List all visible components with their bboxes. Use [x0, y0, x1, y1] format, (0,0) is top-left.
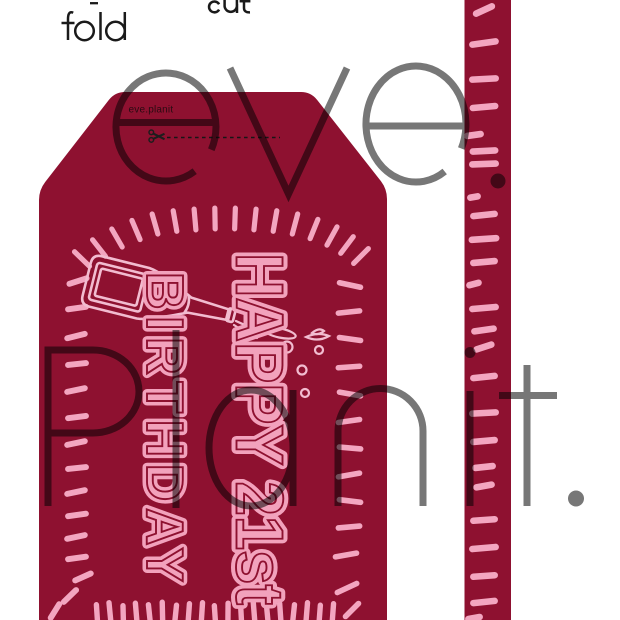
svg-text:eve.planit: eve.planit [129, 105, 174, 116]
svg-text:BIRTHDAY: BIRTHDAY [135, 272, 193, 582]
svg-text:HAPPY 21st: HAPPY 21st [222, 253, 297, 605]
